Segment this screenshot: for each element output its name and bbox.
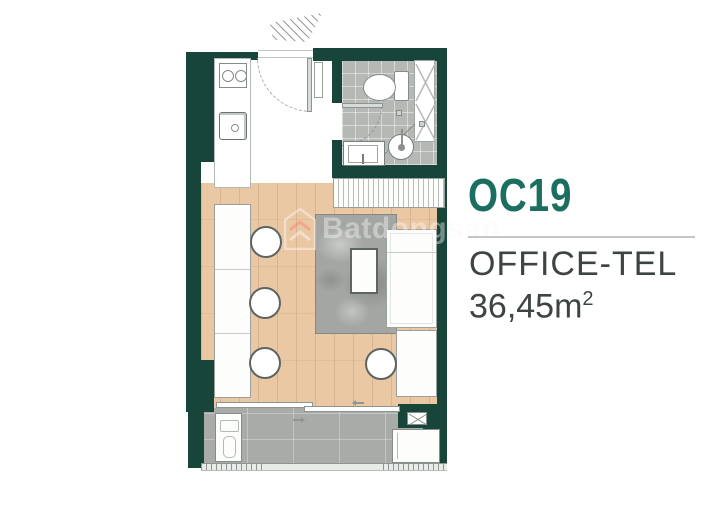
wall [186,160,201,362]
vanity-sink [343,141,385,166]
entry-cabinet [314,62,323,98]
work-counter [214,204,251,398]
stool [250,226,282,258]
entry-hatch-mark [270,13,322,42]
entry-threshold [258,50,313,58]
mattress-edge [390,233,433,324]
unit-detail [397,433,398,459]
unit-detail [220,420,239,432]
shower [388,134,414,160]
entry-door-leaf [307,58,312,112]
wall [332,58,342,103]
pillow-line [387,252,436,253]
shaft-cross-icon [415,61,436,143]
railing-ticks [201,464,263,470]
shower-stem-icon [401,129,403,145]
wardrobe [333,178,445,208]
wall [186,52,214,162]
wall [437,48,447,404]
entry-door-swing [257,58,312,112]
balcony-railing [201,463,447,471]
kitchen-sink [219,112,247,140]
floor-drain-icon [419,121,425,127]
bathroom-door-leaf [342,103,383,108]
toilet-tank [394,71,409,101]
area-unit: m [554,287,582,325]
area-value: 36,45 [469,287,554,325]
counter-joint [215,333,250,334]
stool [365,348,397,380]
shower-head-icon [398,144,405,151]
stool [249,287,281,319]
area-exponent: 2 [582,288,593,310]
sofa-bed [386,229,437,328]
unit-area: 36,45m2 [469,288,594,326]
vent-cross-icon [408,413,428,426]
washer-unit [215,413,242,462]
louver-vent [407,412,427,425]
counter-joint [215,269,250,270]
unit-type-label: OFFICE-TEL [469,246,677,283]
sliding-door [216,402,398,411]
unit-detail [223,436,236,458]
floor-plan: Batdongsan OC19 OFFICE-TEL 36,45m2 [0,0,709,512]
slide-direction-arrow-icon [293,412,305,430]
burner-icon [235,70,247,82]
tap-icon [362,154,364,164]
slide-direction-arrow-icon [352,393,364,411]
stool [249,347,281,379]
burner-icon [222,70,234,82]
divider-line [468,236,695,238]
toilet [363,74,396,101]
ac-unit [392,429,440,463]
unit-code: OC19 [468,172,572,218]
drain-icon [231,124,239,132]
service-shaft [414,60,435,142]
railing-ticks [383,464,447,470]
side-desk [396,330,437,397]
floor-drain-icon [396,110,402,116]
sliding-door-leaf [216,402,313,408]
stove [219,63,247,88]
wall [186,360,214,412]
wall [188,412,204,468]
coffee-table [350,248,378,294]
wall [332,165,447,178]
